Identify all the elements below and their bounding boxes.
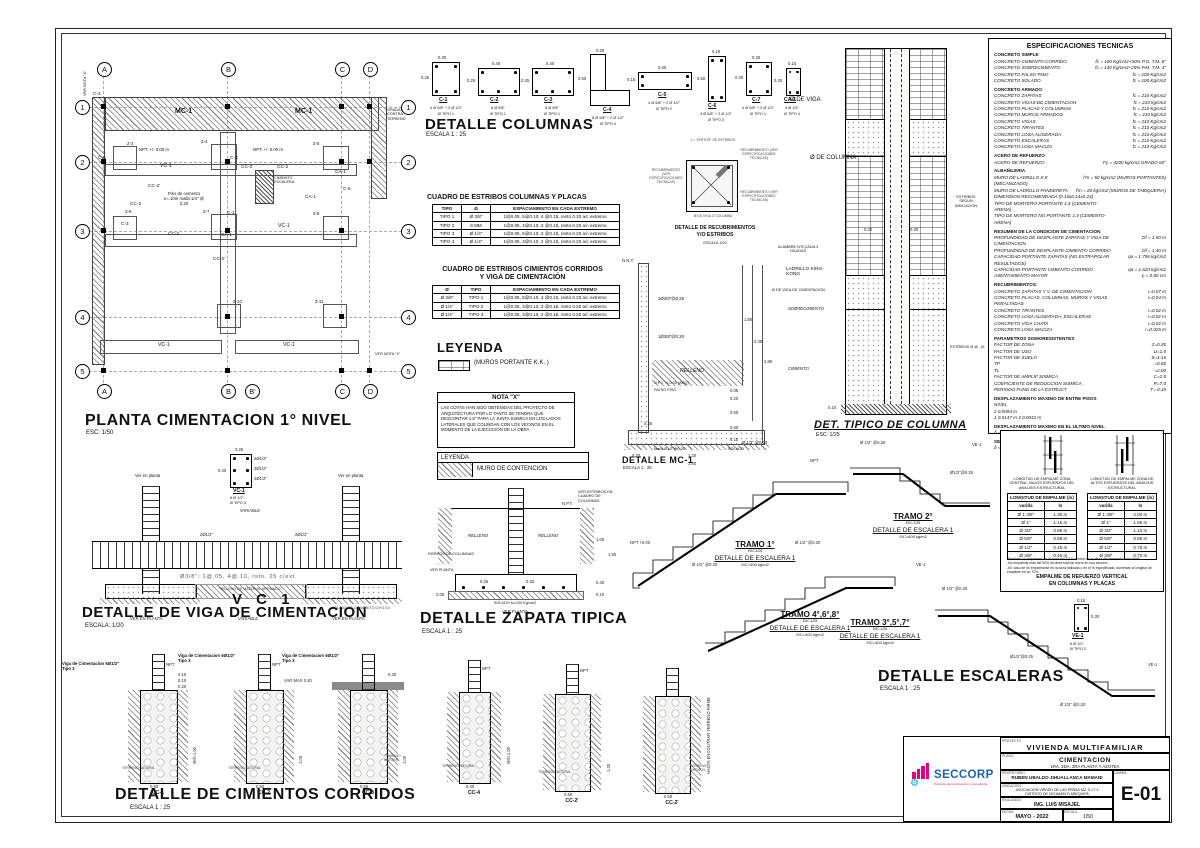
plan-label: MC-1 (175, 108, 192, 116)
plan-label: C-3 (230, 156, 238, 161)
plan-label: Z-11 (315, 300, 324, 305)
project-name: VIVIENDA MULTIFAMILIAR (1001, 743, 1169, 752)
stair-tramo-label: TRAMO 3°,5°,7° ESC:1/25 DETALLE DE ESCAL… (820, 618, 940, 645)
legend2-box: LEYENDA MURO DE CONTENCION (437, 452, 589, 480)
column-details-title: DETALLE COLUMNAS (425, 116, 593, 133)
specs-title: ESPECIFICACIONES TECNICAS (994, 43, 1166, 50)
legend2-item: MURO DE CONTENCION (473, 463, 551, 477)
mc1-label: FALSO PISO (654, 388, 676, 392)
field-label: ESCALA (1064, 810, 1077, 814)
strip-footing-item: 0.40 TERRENO NATURAL 1.00 0.50 CC-3 (332, 654, 404, 794)
logo-cell: ⚙ SECCORP Servicios de Construcción y Co… (904, 737, 1001, 821)
ve1-section: 0.15 0.30 VE-1 6 Ø 1/2" Ø TIPO 2 (1060, 598, 1120, 662)
column-details-scale: ESCALA 1 : 25 (426, 132, 466, 139)
plan-label: VC-1 (278, 224, 290, 230)
ve1-name: VE-1 (1072, 634, 1084, 640)
field-label: FECHA (1002, 810, 1014, 814)
spec-line: CAPACIDAD PORTANTE ZAPATAS (NO EXTRAPOLA… (994, 254, 1166, 267)
plan-label: CC-2' (148, 184, 160, 189)
plan-label: C-4 (93, 92, 101, 97)
plan-label: Z-3 (127, 142, 133, 147)
stirrup-table-foundation-title1: CUADRO DE ESTRIBOS CIMIENTOS CORRIDOS (420, 266, 625, 274)
footing-detail-title: DETALLE ZAPATA TIPICA (420, 610, 627, 628)
plan-label: Z-10 (233, 300, 242, 305)
plan-label: C-5 (343, 187, 351, 192)
plan-label: Z-7 (203, 210, 209, 215)
cover-detail-scale: ESCALA 1/20 (660, 241, 770, 245)
scale-value: 1/50 (1063, 814, 1113, 820)
mc1-label: N.P.T. +/-0.00 (ARQ) (654, 381, 689, 385)
spec-line: TIPO DE MORTERO NO PORTANTE 1:4 (CEMENTO… (994, 213, 1166, 226)
seccorp-tagline: Servicios de Construcción y Consultoría (934, 782, 987, 786)
spec-line: PERIODO FUND DE LA ESTRUCTT= 0.19 (994, 387, 1166, 393)
fill-label: RELLENO (468, 534, 488, 539)
table-row: Ø 1/4"TIPO 21@0.05, 3@0.10, 3 @0.15, res… (433, 302, 620, 310)
strip-footing-name: CC-2' (558, 799, 586, 805)
column-name: C-5 (658, 93, 666, 99)
stair-foundation-label: CIMIENTO ESCALERA (274, 176, 300, 185)
cover-note: L = VER ESP. DE ESTRIBOS (678, 138, 748, 142)
grid-bubble: D (363, 62, 378, 77)
mc1-rebar-note: 1Ø3/8"@0.25 (658, 297, 684, 302)
nota-x-box: NOTA "X" LAS COTAS HAN SIDO OBTENIDAS DE… (437, 392, 575, 448)
column-name: C-4 (603, 108, 611, 114)
spec-line: ASENTAMIENTO MAYORp = 0.80 cm (994, 273, 1166, 279)
column-callout: ALAMBRE N°8 CADA 3 HILADAS (772, 245, 824, 254)
mc1-label: N.N.T. (622, 259, 634, 264)
column-callout: ESTRIBOS Ø @ .15 (950, 345, 984, 349)
plan-label: CC-3 (241, 165, 252, 170)
footing-note: VER PLANTA (430, 568, 453, 572)
seccorp-logo-text: SECCORP (934, 769, 994, 781)
stair-tramo357-drawing (930, 598, 1160, 710)
vc1-section-type: Ø TIPO 3 (230, 501, 246, 505)
plan-note: VER NOTA "X" (375, 352, 400, 356)
plan-label: C-2 (121, 222, 129, 227)
mc1-label: RELLENO (680, 369, 704, 375)
plan-label: MC-1 (295, 108, 312, 116)
footing-detail-scale: ESCALA 1 : 25 (422, 629, 462, 636)
plan-label: VC-1 (283, 343, 295, 349)
stirrup-table-foundation: Ø TIPO ESPACIAMIENTO EN CADA EXTREMO Ø 3… (432, 285, 620, 319)
column-name: C-6 (708, 104, 716, 110)
table-row: TIPO 28 MM1@0.05, 4@0.10, 3 @0.15, resto… (433, 221, 620, 229)
plan-title: PLANTA CIMENTACION 1° NIVEL (85, 412, 352, 430)
grid-bubble: C (335, 384, 350, 399)
field-label: LAMINA (1114, 771, 1127, 775)
strip-footing-scale: ESCALA 1 : 25 (130, 805, 170, 812)
legend-wall-symbol (438, 360, 470, 371)
plan-label: C-1 (227, 211, 235, 216)
npt-note: NPT. +/- 0.00 m (139, 148, 169, 153)
grid-bubble: 5 (75, 364, 90, 379)
stairs-scale: ESCALA 1 : 25 (880, 686, 920, 693)
column-callout: CIMIENTO (788, 367, 809, 372)
column-name: C-1 (439, 98, 447, 104)
field-label: REALIZADO (1002, 798, 1021, 802)
strip-footing-name: CC-2' (658, 801, 686, 807)
grid-bubble: 2 (401, 155, 416, 170)
column-rebar: 6 Ø 5/8" (526, 106, 578, 110)
stirrup-table-foundation-title2: Y VIGA DE CIMENTACIÓN (420, 274, 625, 282)
spec-line: ACERO DE REFUERZOFy = 4200 kg/cm2 GRADO … (994, 160, 1166, 166)
cover-note: RECUBRIMIENTO (VER ESPECIFICACIONES TECN… (648, 168, 684, 184)
grid-bubble: 5 (401, 364, 416, 379)
column-rebar: 4 Ø 5/8" + 2 Ø 1/2" (636, 101, 692, 105)
stair-tramo-label: TRAMO 2° ESC:1/25 DETALLE DE ESCALERA 1 … (858, 512, 968, 539)
sheet-number: E-01 (1113, 784, 1169, 806)
column-name: C-3 (544, 98, 552, 104)
column-rebar: 6 Ø 5/8" (472, 106, 524, 110)
nota-x-body: LAS COTAS HAN SIDO OBTENIDAS DEL PROYECT… (438, 403, 574, 435)
spec-line: MURO DE LADRILLO K.K (MECANIZADO)f'm = 5… (994, 175, 1166, 188)
spec-line: PROFUNDIDAD DE DESPLANTE ZAPATAS Y VIGA … (994, 235, 1166, 248)
plan-label: CA-1 (305, 195, 316, 200)
legend-wall-label: (MUROS PORTANTE K.K. ) (474, 360, 549, 367)
retaining-wall-right (371, 97, 387, 199)
stair-tramo2-drawing (845, 448, 995, 508)
field-label: PROYECTO (1002, 739, 1021, 743)
spec-line: 1 0.0147 m 3 0.0042 m (994, 415, 1166, 421)
field-label: UBICACION (1002, 784, 1021, 788)
footing-note: FIERROS DE COLUMNAS (428, 552, 474, 556)
grid-bubble: A (97, 62, 112, 77)
beam-stirrup-note: Ø3/8": 1@.05, 4@.10, rsto. 25 c/ext. (180, 574, 297, 580)
drawing-sheet: A B C D A B B' C D 1 2 3 4 5 1 2 3 4 5 (0, 0, 1200, 848)
plan-label: Z-6 (125, 210, 131, 215)
plan-label: CA-1 (221, 233, 232, 238)
typical-column-detail: Ø DE VIGA Ø DE COLUMNA ALAMBRE N°8 CADA … (772, 45, 982, 445)
technical-specs-panel: ESPECIFICACIONES TECNICAS CONCRETO SIMPL… (988, 38, 1172, 434)
table-row: TIPO 3Ø 1/4"1@0.05, 5@0.10, 3 @0.15, res… (433, 229, 620, 237)
stairs-title: DETALLE ESCALERAS (878, 668, 1064, 686)
mc1-rebar-note: 1Ø3/8"@0.30 (658, 335, 684, 340)
cover-detail-title1: DETALLE DE RECUBRIMIENTOS (660, 226, 770, 232)
retaining-wall-mc1 (105, 97, 379, 131)
strip-footing-title: DETALLE DE CIMIENTOS CORRIDOS (115, 786, 415, 804)
stirrup-table-columns-title: CUADRO DE ESTRIBOS COLUMNAS Y PLACAS (427, 194, 587, 202)
beam-note: Ver en planta (135, 474, 160, 479)
strip-footing-item: NPT TERRENO NATURAL 1.20 0.50 CC-2' (538, 664, 608, 800)
vc1-section-name: VC-1 (233, 489, 245, 495)
strip-footing-item: NPT VAR MAX 0.40 TERRENO NATURAL 1.00 0.… (228, 654, 300, 794)
column-callout: SOBRECIMIENTO (788, 307, 824, 312)
grid-bubble: 3 (401, 224, 416, 239)
column-callout: LADRILLO KING-KONG (786, 267, 830, 278)
plan-label: Z-8 (313, 212, 319, 217)
grid-bubble: 1 (75, 100, 90, 115)
foundation-beam-title: DETALLE DE VIGA DE CIMENTACION (82, 604, 367, 621)
column-callout: Ø DE VIGA (790, 97, 821, 104)
fill-label: RELLENO (538, 534, 558, 539)
column-callout: Ø DE COLUMNA (810, 155, 856, 162)
column-name: C-2 (490, 98, 498, 104)
grid-bubble: B (221, 62, 236, 77)
plan-label: CC-2 (130, 202, 141, 207)
title-block: ⚙ SECCORP Servicios de Construcción y Co… (903, 736, 1170, 822)
date-value: MAYO - 2022 (1001, 814, 1063, 820)
cover-detail-title2: Y/O ESTRIBOS (660, 233, 770, 239)
grid-bubble: B' (245, 384, 260, 399)
beam-callout: Viga de Cimentacion 6Ø1/2" Tipo 3 (62, 662, 120, 672)
plan-label: CC-2 (168, 232, 179, 237)
grid-bubble: 4 (401, 310, 416, 325)
table-row: TIPO 4Ø 1/4"1@0.05, 3@0.10, 2 @0.15, res… (433, 238, 620, 246)
grid-bubble: 2 (75, 155, 90, 170)
engineer-name: ING. LUIS MISAJEL (1001, 802, 1113, 808)
table-row: TIPO 1Ø 3/8"1@0.05, 5@0.10, 4 @0.15, res… (433, 213, 620, 221)
location-line1: ASOCIACION VIRGEN DE LAS PEÑAS MZ. K LT … (1001, 788, 1113, 792)
spec-line: CONCRETO PLACAS, COLUMNAS, MUROS Y VIGAS… (994, 295, 1166, 308)
legend-title: LEYENDA (437, 340, 503, 355)
plan-label: Z-4 (201, 140, 207, 145)
grid-bubble: D (363, 384, 378, 399)
grid-bubble: 3 (75, 224, 90, 239)
column-stirrup-type: Ø TIPO 2 (636, 107, 692, 111)
plan-label: CC-2 (277, 165, 288, 170)
spec-line: TIPO DE MORTERO PORTANTE 1:4 (CEMENTO-AR… (994, 201, 1166, 214)
grid-bubble: C (335, 62, 350, 77)
plan-label: CA-1 (335, 170, 346, 175)
typical-column-scale: ESC: 1/25 (816, 433, 840, 439)
plan-label: CC-2' (213, 257, 225, 262)
foundation-beam-scale: ESCALA: 1/20 (85, 623, 124, 630)
beam-note: Ver en planta (338, 474, 363, 479)
spec-line: CONCRETO SOLADOfc = 100 Kg/cm2 (994, 78, 1166, 84)
stirrup-table-columns: TIPO Ø ESPACIAMIENTO EN CADA EXTREMO TIP… (432, 204, 620, 246)
strip-footing-item: NPT TERRENO NATURAL MIN 1.00 0.40 CC-4 (442, 660, 508, 794)
nota-x-title: NOTA "X" (438, 393, 574, 403)
ve1-rebar: 6 Ø 1/2" (1070, 642, 1084, 646)
gear-icon: ⚙ (910, 778, 919, 789)
grid-bubble: 4 (75, 310, 90, 325)
vc1-section-rebar: 6 Ø 1/2" (230, 496, 244, 500)
spec-line: CONCRETO LOSA MACIZAr=0.025 m (994, 327, 1166, 333)
grid-bubble: 1 (401, 100, 416, 115)
legend2-header: LEYENDA (438, 453, 588, 463)
plan-scale: ESC: 1/50 (86, 430, 113, 437)
column-callout: Ø DE VIGA DE CIMENTACION (772, 288, 828, 292)
npt-note: NPT. +/- 0.00 m (253, 148, 283, 153)
seccorp-logo-icon: ⚙ (912, 763, 934, 785)
cover-detail: L = VER ESP. DE ESTRIBOS RECUBRIMIENTO (… (648, 138, 778, 256)
legend2-hatch-symbol (438, 463, 473, 477)
foundation-plan: A B C D A B B' C D 1 2 3 4 5 1 2 3 4 5 (75, 52, 415, 404)
strip-footing-name: CC-4 (460, 791, 488, 797)
plan-note: VER NOTA "X" (83, 71, 87, 96)
typical-column-title: DET. TIPICO DE COLUMNA (814, 419, 967, 431)
strip-footing-item: TERRENO NATURAL HASTA ENCONTRAR TERRENO … (638, 668, 708, 804)
field-label: PLANO (1002, 754, 1014, 758)
column-details: 0.300.25 C-1 4 Ø 5/8" + 2 Ø 1/2" Ø TIPO … (420, 48, 820, 148)
owner-name: RUBEN UBALDO JIHUALLANCA MAMANI (1001, 775, 1113, 780)
strip-footing-item: NPT 0.10 0.10 0.20 TERRENO NATURAL MIN 1… (122, 654, 194, 794)
table-row: Ø 1/4"TIPO 31@0.05, 3@0.10, 2 @0.15, res… (433, 310, 620, 318)
cover-note: Ø DE VIGA O COLUMNA (678, 214, 748, 218)
ve1-type: Ø TIPO 2 (1070, 647, 1086, 651)
table-row: Ø 3/8"TIPO 11@0.05, 5@0.10, 4 @0.15, res… (433, 294, 620, 302)
column-rebar: 4 Ø 5/8" + 2 Ø 1/2" (422, 106, 470, 110)
floor-note: Piso de cemento e=.10m malla 1/4" @ 0.20 (161, 192, 207, 206)
plan-label: Z-5 (313, 142, 319, 147)
lean-concrete-label: SOLADO fc=100 Kg/cm2 (475, 601, 555, 605)
specs-list: CONCRETO SIMPLECONCRETO CIMIENTO CORRIDO… (994, 52, 1166, 451)
sheet-subject: CIMENTACION (1001, 757, 1169, 764)
location-line2: DISTRITO DE UCHUMAYO AREQUIPA (1001, 792, 1113, 796)
field-label: PROPIETARIO (1002, 771, 1025, 775)
plan-label: VC-1 (158, 343, 170, 349)
grid-bubble: B (221, 384, 236, 399)
plan-label: VC-1 (160, 164, 172, 170)
grid-bubble: A (97, 384, 112, 399)
sheet-subject-levels: 1RA, 2DA, 3RA PLANTA Y AZOTEA (1001, 764, 1169, 769)
column-name: C-7 (752, 98, 760, 104)
footing-note: VER ESTRIBOS EN CUADRO DE COLUMNAS (578, 490, 622, 503)
column-callout: ESTRIBOS SEGUN INDICACION (950, 195, 982, 208)
column-stirrup-type: Ø TIPO 2 (688, 118, 744, 122)
spec-line: CONCRETO LOSA MACIZAfc = 210 Kg/cm2 (994, 144, 1166, 150)
